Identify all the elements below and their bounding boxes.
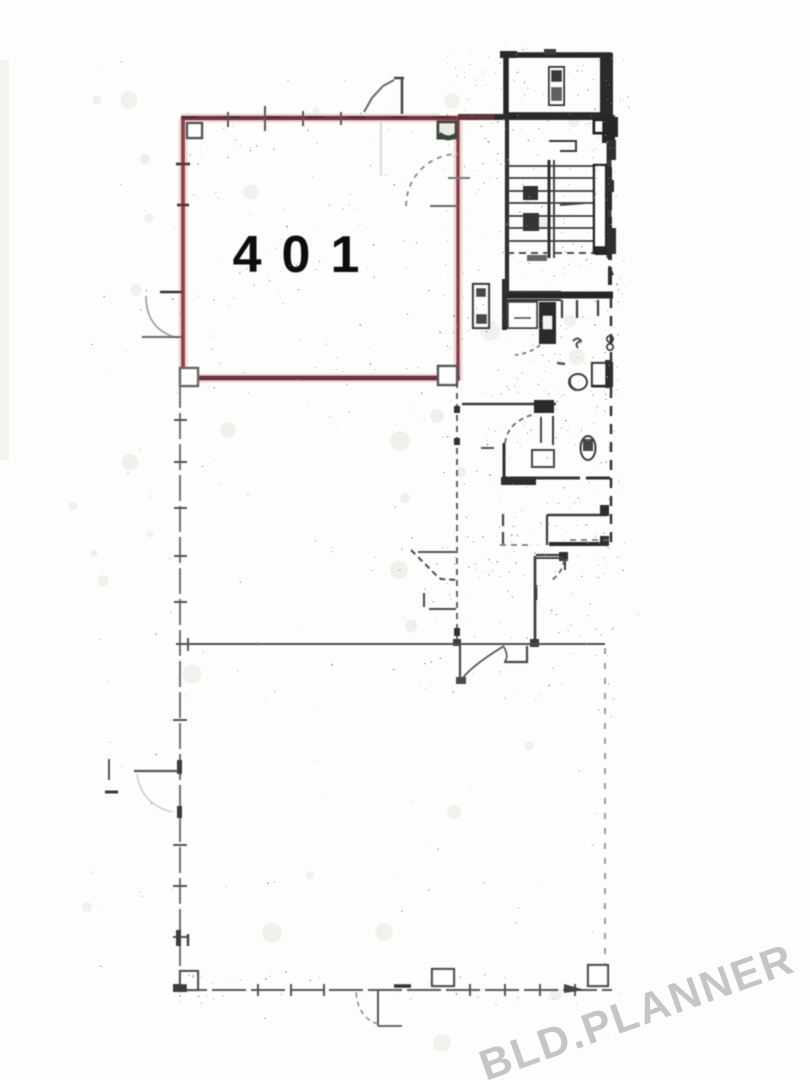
svg-text:401: 401 <box>233 226 380 284</box>
